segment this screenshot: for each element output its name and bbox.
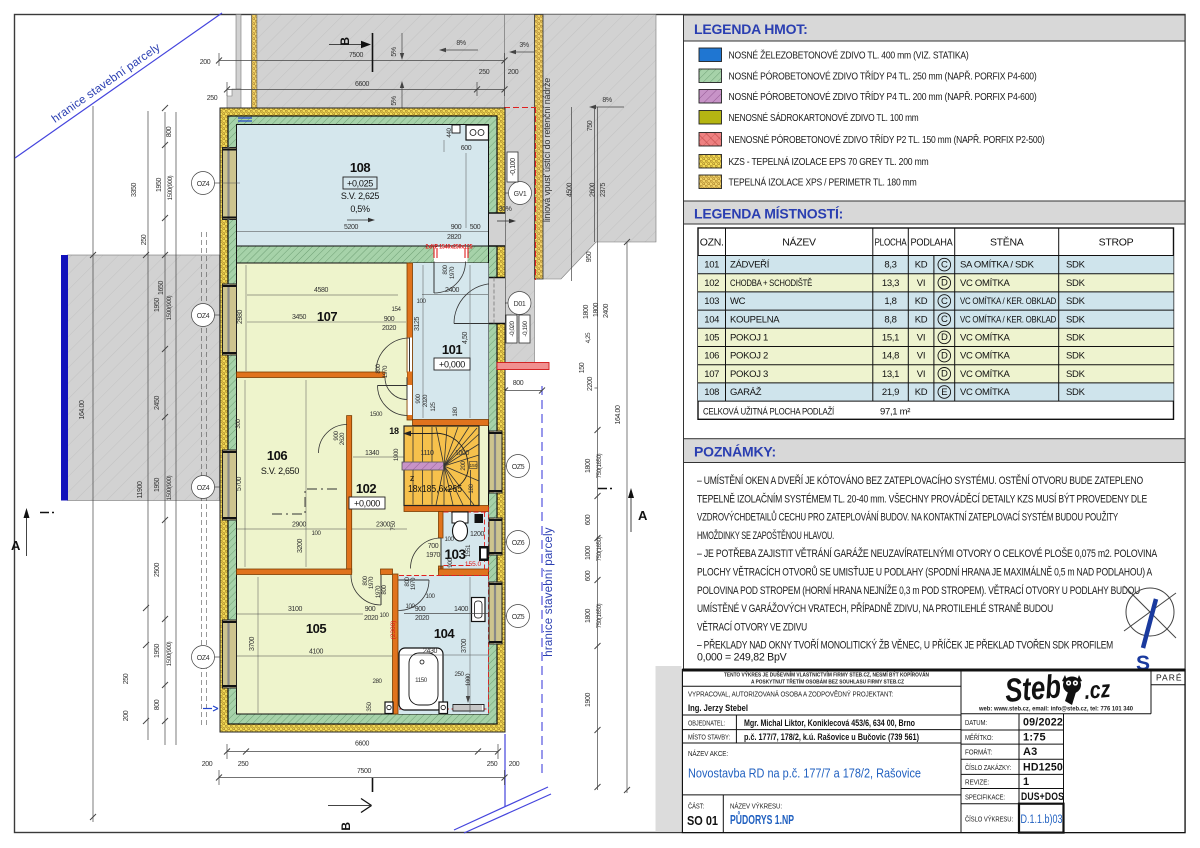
svg-text:VI: VI: [917, 351, 925, 362]
svg-text:8%: 8%: [602, 97, 611, 104]
svg-text:PLOCHA: PLOCHA: [875, 237, 907, 249]
svg-text:300: 300: [235, 418, 242, 428]
svg-text:900: 900: [415, 606, 426, 613]
svg-text:6600: 6600: [355, 81, 369, 88]
svg-text:(2300): (2300): [390, 621, 397, 640]
svg-text:D: D: [941, 350, 948, 361]
svg-text:250: 250: [454, 671, 464, 678]
svg-text:164.00: 164.00: [615, 405, 622, 425]
svg-text:SDK: SDK: [1066, 260, 1086, 271]
svg-text:1800: 1800: [593, 303, 600, 317]
svg-text:SDK: SDK: [1066, 314, 1086, 325]
svg-text:600: 600: [461, 145, 472, 152]
svg-text:E: E: [941, 387, 947, 398]
svg-text:200: 200: [200, 59, 211, 66]
svg-text:NOSNÉ PÓROBETONOVÉ ZDIVO TŘÍDY: NOSNÉ PÓROBETONOVÉ ZDIVO TŘÍDY P4 TL. 20…: [729, 90, 1037, 103]
svg-text:OBJEDNATEL:: OBJEDNATEL:: [688, 719, 725, 728]
svg-text:200: 200: [202, 761, 213, 768]
svg-text:108: 108: [350, 160, 370, 175]
svg-text:S.V. 2,650: S.V. 2,650: [261, 466, 299, 476]
svg-text:150: 150: [579, 362, 586, 373]
svg-text:1000: 1000: [465, 673, 472, 686]
svg-text:250: 250: [207, 95, 218, 102]
svg-text:750(1650): 750(1650): [596, 603, 603, 628]
svg-text:8%: 8%: [456, 40, 465, 47]
svg-text:164.00: 164.00: [79, 400, 86, 420]
svg-text:1500(900): 1500(900): [166, 475, 173, 500]
svg-text:250: 250: [123, 673, 130, 684]
svg-text:D01: D01: [514, 301, 526, 308]
svg-text:MÍSTO STAVBY:: MÍSTO STAVBY:: [688, 733, 730, 742]
svg-text:09/2022: 09/2022: [1023, 717, 1063, 729]
svg-text:250: 250: [238, 761, 249, 768]
svg-text:SA OMÍTKA / SDK: SA OMÍTKA / SDK: [960, 260, 1035, 271]
svg-text:3350: 3350: [131, 183, 138, 197]
svg-text:250: 250: [487, 761, 498, 768]
svg-text:1500(900): 1500(900): [166, 641, 173, 666]
svg-text:750(1650): 750(1650): [596, 536, 603, 561]
svg-text:11900: 11900: [137, 481, 144, 498]
svg-text:800: 800: [154, 699, 161, 710]
svg-text:280: 280: [372, 678, 382, 685]
svg-text:5700: 5700: [236, 477, 243, 491]
svg-text:VC OMÍTKA: VC OMÍTKA: [960, 387, 1011, 398]
svg-text:LEGENDA HMOT:: LEGENDA HMOT:: [694, 21, 808, 37]
svg-text:-0,100: -0,100: [510, 158, 517, 176]
svg-text:3450: 3450: [292, 314, 306, 321]
svg-text:101: 101: [442, 342, 462, 357]
svg-text:OZ4: OZ4: [197, 181, 210, 188]
svg-text:4,25: 4,25: [585, 332, 592, 343]
svg-text:154: 154: [391, 306, 401, 313]
svg-text:STROP: STROP: [1099, 237, 1134, 249]
svg-text:21,9: 21,9: [882, 387, 899, 398]
svg-text:1000: 1000: [585, 546, 592, 560]
svg-text:125: 125: [430, 401, 437, 411]
svg-text:900: 900: [415, 393, 422, 403]
svg-text:Mgr. Michal Liktor, Koniklecov: Mgr. Michal Liktor, Koniklecová 453/6, 6…: [744, 718, 915, 729]
svg-text:B: B: [338, 37, 352, 46]
svg-text:4580: 4580: [314, 287, 328, 294]
svg-text:SO 01: SO 01: [687, 814, 718, 828]
svg-text:800: 800: [381, 584, 388, 594]
svg-text:1970: 1970: [382, 365, 389, 378]
svg-text:13,1: 13,1: [882, 369, 899, 380]
svg-text:1970: 1970: [426, 552, 440, 559]
svg-text:100: 100: [444, 536, 454, 543]
svg-text:web: www.steb.cz, email: info@: web: www.steb.cz, email: info@steb.cz, t…: [978, 706, 1133, 713]
svg-text:2200: 2200: [587, 377, 594, 391]
svg-text:105: 105: [306, 621, 326, 636]
svg-text:Ing. Jerzy Stebel: Ing. Jerzy Stebel: [688, 703, 748, 714]
svg-text:6600: 6600: [355, 741, 369, 748]
svg-text:1340: 1340: [365, 450, 379, 457]
svg-text:2450: 2450: [154, 396, 161, 410]
svg-text:900: 900: [365, 606, 376, 613]
svg-text:CELKOVÁ UŽITNÁ PLOCHA PODLAŽÍ: CELKOVÁ UŽITNÁ PLOCHA PODLAŽÍ: [703, 406, 835, 417]
svg-text:106: 106: [267, 448, 287, 463]
svg-text:HD1250: HD1250: [1023, 762, 1063, 774]
svg-text:18x185,6x265: 18x185,6x265: [408, 484, 462, 495]
svg-text:POKOJ 2: POKOJ 2: [730, 351, 768, 362]
svg-text:SDK: SDK: [1066, 296, 1086, 307]
svg-text:DATUM:: DATUM:: [965, 718, 987, 727]
svg-text:POKOJ 3: POKOJ 3: [730, 369, 768, 380]
svg-text:1950: 1950: [156, 178, 163, 192]
svg-text:A3: A3: [1023, 746, 1037, 758]
svg-text:D.1.1.b)03: D.1.1.b)03: [1021, 814, 1063, 826]
svg-text:106: 106: [704, 351, 719, 362]
svg-text:.cz: .cz: [1083, 676, 1111, 705]
svg-text:KD: KD: [915, 314, 928, 325]
svg-text:VC OMÍTKA: VC OMÍTKA: [960, 278, 1011, 289]
svg-text:200: 200: [508, 69, 519, 76]
svg-text:1650: 1650: [158, 281, 165, 295]
svg-text:1800: 1800: [585, 609, 592, 623]
svg-text:1: 1: [1023, 776, 1029, 788]
svg-text:VC OMÍTKA: VC OMÍTKA: [960, 351, 1011, 362]
svg-text:1500(900): 1500(900): [167, 175, 174, 200]
svg-text:0,000 = 249,82 BpV: 0,000 = 249,82 BpV: [697, 652, 788, 664]
svg-text:2500: 2500: [154, 563, 161, 577]
svg-text:900: 900: [447, 557, 454, 567]
svg-text:GV1: GV1: [514, 191, 527, 198]
svg-text:200: 200: [509, 761, 520, 768]
svg-text:GARÁŽ: GARÁŽ: [730, 387, 762, 398]
svg-text:102: 102: [704, 278, 719, 289]
svg-text:MĚŘÍTKO:: MĚŘÍTKO:: [965, 733, 993, 742]
svg-text:2020: 2020: [415, 615, 429, 622]
svg-text:TENTO VÝKRES JE DUŠEVNÍM VLAST: TENTO VÝKRES JE DUŠEVNÍM VLASTNICTVÍM FI…: [724, 671, 929, 679]
svg-text:NOSNÉ PÓROBETONOVÉ ZDIVO TŘÍDY: NOSNÉ PÓROBETONOVÉ ZDIVO TŘÍDY P4 TL. 25…: [729, 70, 1037, 83]
svg-text:100: 100: [379, 612, 389, 619]
svg-text:VYPRACOVAL, AUTORIZOVANÁ OSOBA: VYPRACOVAL, AUTORIZOVANÁ OSOBA A ZODPOVĚ…: [688, 690, 893, 699]
svg-text:-0,190: -0,190: [522, 320, 529, 336]
svg-text:DUS+DOS: DUS+DOS: [1021, 791, 1064, 803]
svg-text:SDK: SDK: [1066, 278, 1086, 289]
svg-text:2300: 2300: [376, 522, 390, 529]
svg-text:2820: 2820: [447, 234, 461, 241]
svg-text:p.č. 177/7, 178/2, k.ú. Rašovi: p.č. 177/7, 178/2, k.ú. Rašovice u Bučov…: [744, 732, 919, 743]
svg-text:2430: 2430: [423, 648, 437, 655]
svg-text:ČÁST:: ČÁST:: [688, 802, 704, 811]
svg-text:1970: 1970: [449, 266, 456, 279]
svg-text:Novostavba RD na p.č. 177/7 a: Novostavba RD na p.č. 177/7 a 178/2, Raš…: [688, 766, 921, 781]
svg-text:HMOŽDINKY SE ZAPOŠTĚNOU HLAVOU: HMOŽDINKY SE ZAPOŠTĚNOU HLAVOU.: [697, 529, 834, 542]
svg-text:500: 500: [470, 224, 481, 231]
svg-text:NÁZEV AKCE:: NÁZEV AKCE:: [688, 749, 728, 758]
svg-text:1970: 1970: [368, 576, 375, 589]
svg-text:13,3: 13,3: [882, 278, 899, 289]
svg-text:250: 250: [141, 234, 148, 245]
svg-text:440: 440: [446, 127, 453, 137]
svg-text:D: D: [941, 369, 948, 380]
svg-text:250: 250: [479, 69, 490, 76]
svg-text:B: B: [339, 822, 353, 831]
svg-text:D: D: [941, 278, 948, 289]
svg-text:750: 750: [587, 120, 594, 131]
svg-text:0,5%: 0,5%: [350, 204, 370, 214]
svg-text:KOUPELNA: KOUPELNA: [730, 314, 780, 325]
svg-text:15,1: 15,1: [882, 333, 899, 344]
svg-text:OZ5: OZ5: [512, 614, 525, 621]
svg-text:104: 104: [434, 626, 455, 641]
svg-text:1950: 1950: [154, 644, 161, 658]
svg-text:LEGENDA MÍSTNOSTÍ:: LEGENDA MÍSTNOSTÍ:: [694, 206, 843, 222]
svg-text:NÁZEV: NÁZEV: [782, 236, 816, 249]
svg-text:155.0: 155.0: [465, 561, 482, 568]
svg-text:2xNP 1540x250x125: 2xNP 1540x250x125: [426, 244, 473, 251]
svg-text:4500: 4500: [567, 183, 574, 197]
svg-text:– JE POTŘEBA ZAJISTIT VĚTRÁNÍ: – JE POTŘEBA ZAJISTIT VĚTRÁNÍ GARÁŽE NEU…: [697, 547, 1158, 560]
svg-text:NENOSNÉ SÁDROKARTONOVÉ ZDIVO T: NENOSNÉ SÁDROKARTONOVÉ ZDIVO TL. 100 mm: [729, 111, 919, 124]
svg-text:+0,000: +0,000: [354, 499, 380, 509]
svg-text:1800: 1800: [585, 459, 592, 473]
svg-text:KD: KD: [915, 260, 928, 271]
svg-text:1400: 1400: [454, 606, 468, 613]
svg-text:3125: 3125: [414, 317, 421, 331]
svg-text:OZ5: OZ5: [512, 464, 525, 471]
svg-text:950: 950: [586, 251, 593, 262]
svg-text:ČÍSLO VÝKRESU:: ČÍSLO VÝKRESU:: [965, 815, 1013, 824]
svg-text:REVIZE:: REVIZE:: [965, 778, 989, 787]
svg-text:UMÍSTĚNÉ V GARÁŽOVÝCH VRATECH,: UMÍSTĚNÉ V GARÁŽOVÝCH VRATECH, PŘÍPADNĚ …: [697, 602, 1053, 615]
svg-text:1900: 1900: [393, 448, 400, 461]
svg-text:1150: 1150: [415, 677, 428, 684]
svg-text:900: 900: [451, 224, 462, 231]
svg-text:104: 104: [704, 314, 719, 325]
svg-text:30%: 30%: [499, 206, 512, 213]
svg-text:1551: 1551: [465, 544, 472, 557]
svg-text:2020: 2020: [382, 325, 396, 332]
svg-text:liniová vpusť ústící do retenč: liniová vpusť ústící do retenční nádrže: [542, 78, 552, 222]
svg-text:2020: 2020: [422, 394, 429, 407]
svg-text:102: 102: [356, 481, 376, 496]
svg-text:3700: 3700: [249, 637, 256, 651]
svg-text:2400: 2400: [445, 287, 459, 294]
svg-text:A: A: [11, 538, 21, 553]
svg-text:1950: 1950: [154, 478, 161, 492]
svg-text:100: 100: [416, 298, 426, 305]
svg-text:KD: KD: [915, 387, 928, 398]
svg-text:600: 600: [585, 570, 592, 581]
svg-text:SDK: SDK: [1066, 333, 1086, 344]
svg-text:107: 107: [704, 369, 719, 380]
svg-text:C: C: [941, 314, 948, 325]
svg-text:4100: 4100: [309, 649, 323, 656]
svg-text:800: 800: [442, 264, 449, 274]
svg-text:SDK: SDK: [1066, 387, 1086, 398]
svg-text:5200: 5200: [344, 224, 358, 231]
svg-text:+0,025: +0,025: [347, 179, 373, 189]
svg-text:1970: 1970: [410, 577, 417, 590]
svg-text:POZNÁMKY:: POZNÁMKY:: [694, 444, 776, 460]
svg-text:14,8: 14,8: [882, 351, 899, 362]
svg-text:350: 350: [366, 701, 373, 711]
svg-text:100: 100: [311, 530, 321, 537]
svg-text:700: 700: [428, 543, 439, 550]
svg-text:1,8: 1,8: [884, 296, 896, 307]
svg-text:101: 101: [704, 260, 719, 271]
svg-text:NÁZEV VÝKRESU:: NÁZEV VÝKRESU:: [730, 802, 782, 811]
svg-text:1:75: 1:75: [1023, 732, 1046, 744]
svg-text:105: 105: [704, 333, 719, 344]
svg-text:TEPELNÁ IZOLACE XPS / PERIMETR: TEPELNÁ IZOLACE XPS / PERIMETR TL. 180 m…: [729, 176, 917, 189]
svg-text:KD: KD: [915, 296, 928, 307]
svg-text:TEPELNĚ IZOLAČNÍM SYSTÉMEM TL.: TEPELNĚ IZOLAČNÍM SYSTÉMEM TL. 20-40 mm.…: [697, 492, 1147, 505]
svg-text:C: C: [941, 296, 948, 307]
svg-text:PŮDORYS 1.NP: PŮDORYS 1.NP: [730, 811, 794, 827]
svg-text:NOSNÉ ŽELEZOBETONOVÉ ZDIVO TL.: NOSNÉ ŽELEZOBETONOVÉ ZDIVO TL. 400 mm (V…: [729, 49, 969, 62]
svg-text:OZ6: OZ6: [512, 540, 525, 547]
svg-text:3200: 3200: [297, 539, 304, 553]
svg-text:800: 800: [166, 126, 173, 137]
svg-text:VĚTRACÍ OTVORY VE ZDIVU: VĚTRACÍ OTVORY VE ZDIVU: [697, 620, 807, 633]
svg-text:3700: 3700: [461, 639, 468, 653]
svg-text:A: A: [638, 508, 648, 523]
svg-text:7500: 7500: [357, 768, 371, 775]
svg-text:STĚNA: STĚNA: [990, 236, 1024, 249]
svg-text:1000: 1000: [455, 450, 469, 457]
svg-text:18: 18: [389, 426, 399, 436]
svg-text:POKOJ 1: POKOJ 1: [730, 333, 768, 344]
svg-text:SDK: SDK: [1066, 369, 1086, 380]
svg-text:750: 750: [390, 520, 397, 530]
svg-text:A POSKYTNUT TŘETÍM OSOBÁM BEZ: A POSKYTNUT TŘETÍM OSOBÁM BEZ SOUHLASU F…: [751, 678, 904, 686]
svg-text:800: 800: [375, 363, 382, 373]
svg-text:1200: 1200: [470, 531, 484, 538]
svg-text:VC OMÍTKA: VC OMÍTKA: [960, 369, 1011, 380]
svg-text:2020: 2020: [364, 615, 378, 622]
svg-text:VZDROVÝCHDETAILŮ CECHU PRO ZAT: VZDROVÝCHDETAILŮ CECHU PRO ZATEPLOVÁNÍ B…: [697, 511, 1118, 524]
svg-text:103: 103: [704, 296, 719, 307]
svg-text:108: 108: [704, 387, 719, 398]
svg-text:SDK: SDK: [1066, 351, 1086, 362]
svg-text:-0,020: -0,020: [509, 320, 516, 336]
svg-text:OZ4: OZ4: [197, 655, 210, 662]
svg-text:7500: 7500: [349, 52, 363, 59]
svg-text:CHODBA + SCHODIŠTĚ: CHODBA + SCHODIŠTĚ: [730, 278, 812, 289]
svg-text:200: 200: [460, 460, 467, 470]
svg-text:VI: VI: [917, 278, 925, 289]
svg-text:1110: 1110: [421, 450, 434, 457]
svg-text:100: 100: [425, 593, 435, 600]
svg-text:VI: VI: [917, 369, 925, 380]
svg-text:750(1650): 750(1650): [596, 453, 603, 478]
svg-text:WC: WC: [730, 296, 746, 307]
svg-text:4,50: 4,50: [462, 331, 469, 344]
svg-text:2620: 2620: [339, 432, 346, 445]
svg-text:5%: 5%: [391, 47, 398, 56]
svg-text:D: D: [941, 332, 948, 343]
svg-text:VC OMÍTKA / KER. OBKLAD: VC OMÍTKA / KER. OBKLAD: [960, 296, 1056, 307]
svg-text:ZÁDVEŘÍ: ZÁDVEŘÍ: [730, 260, 770, 271]
svg-text:5%: 5%: [391, 96, 398, 105]
svg-text:600: 600: [585, 514, 592, 525]
svg-text:107: 107: [317, 309, 337, 324]
svg-text:150: 150: [469, 463, 477, 469]
svg-text:VI: VI: [917, 333, 925, 344]
svg-text:180: 180: [452, 406, 459, 416]
svg-text:OZ4: OZ4: [197, 313, 210, 320]
svg-text:– PŘEKLADY NAD OKNY TVOŘÍ MONO: – PŘEKLADY NAD OKNY TVOŘÍ MONOLITICKÝ ŽB…: [697, 639, 1113, 652]
svg-text:SPECIFIKACE:: SPECIFIKACE:: [965, 793, 1005, 802]
svg-text:PODLAHA: PODLAHA: [911, 237, 953, 249]
svg-text:2980: 2980: [237, 310, 244, 324]
svg-text:1950: 1950: [154, 298, 161, 312]
svg-text:hranice stavební parcely: hranice stavební parcely: [543, 527, 555, 657]
svg-text:8,8: 8,8: [884, 314, 896, 325]
svg-text:2375: 2375: [600, 183, 607, 197]
svg-text:KZS - TEPELNÁ IZOLACE EPS 70 G: KZS - TEPELNÁ IZOLACE EPS 70 GREY TL. 20…: [729, 155, 929, 168]
svg-text:– UMÍSTĚNÍ OKEN A DVEŘÍ JE KÓT: – UMÍSTĚNÍ OKEN A DVEŘÍ JE KÓTOVÁNO BEZ …: [697, 474, 1143, 487]
svg-text:3%: 3%: [519, 42, 528, 49]
svg-text:S.V. 2,625: S.V. 2,625: [341, 191, 379, 201]
svg-text:PLOCHY VĚTRACÍCH OTVORŮ SE UMI: PLOCHY VĚTRACÍCH OTVORŮ SE UMISŤUJE U PO…: [697, 566, 1153, 579]
svg-text:POLOVINA POD STROPEM (HORNÍ HR: POLOVINA POD STROPEM (HORNÍ HRANA NEJNÍŽ…: [697, 584, 1140, 597]
svg-text:ČÍSLO ZAKÁZKY:: ČÍSLO ZAKÁZKY:: [965, 763, 1011, 772]
svg-text:8,3: 8,3: [884, 260, 896, 271]
svg-text:NENOSNÉ PÓROBETONOVÉ ZDIVO TŘÍ: NENOSNÉ PÓROBETONOVÉ ZDIVO TŘÍDY P2 TL. …: [729, 133, 1045, 146]
svg-text:180: 180: [468, 483, 475, 493]
svg-text:1800: 1800: [583, 305, 590, 319]
svg-text:3100: 3100: [288, 606, 302, 613]
svg-text:2600: 2600: [590, 183, 597, 197]
svg-text:800: 800: [513, 380, 524, 387]
svg-text:1900: 1900: [585, 693, 592, 707]
svg-text:PARÉ: PARÉ: [1156, 673, 1183, 683]
svg-text:+0,000: +0,000: [439, 360, 465, 370]
svg-text:Steb: Steb: [1003, 667, 1062, 709]
svg-text:C: C: [941, 259, 948, 270]
svg-text:OZN.: OZN.: [700, 237, 724, 249]
svg-text:1970: 1970: [375, 585, 382, 598]
svg-text:100: 100: [405, 603, 415, 610]
svg-text:OZ4: OZ4: [197, 485, 210, 492]
svg-text:200: 200: [123, 710, 130, 721]
svg-text:2400: 2400: [603, 304, 610, 318]
svg-text:VC OMÍTKA: VC OMÍTKA: [960, 333, 1011, 344]
svg-text:2900: 2900: [292, 522, 306, 529]
svg-text:900: 900: [384, 316, 395, 323]
svg-text:FORMÁT:: FORMÁT:: [965, 748, 992, 757]
svg-text:97,1 m²: 97,1 m²: [880, 406, 910, 417]
svg-text:VC OMÍTKA / KER. OBKLAD: VC OMÍTKA / KER. OBKLAD: [960, 314, 1056, 325]
svg-text:1500: 1500: [370, 411, 383, 418]
svg-text:1500(900): 1500(900): [166, 295, 173, 320]
